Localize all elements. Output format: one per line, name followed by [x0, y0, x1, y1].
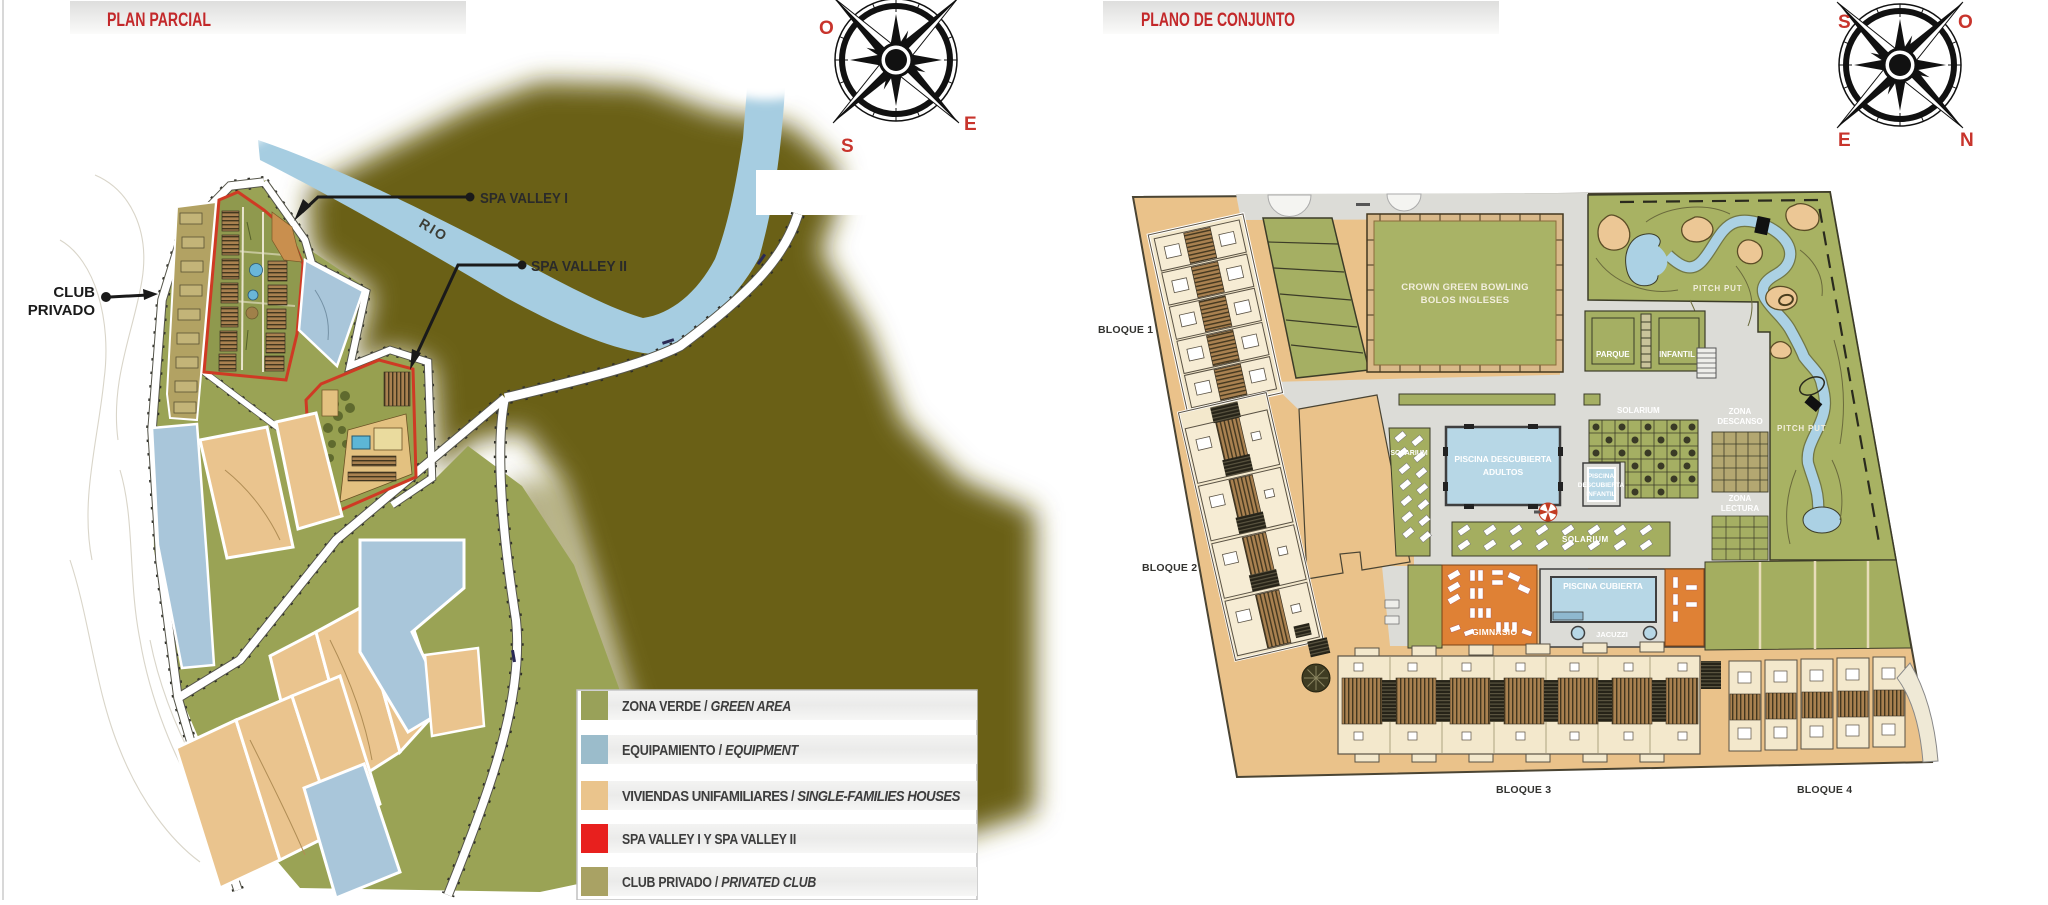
svg-text:PRIVADO: PRIVADO [28, 302, 96, 319]
svg-text:SPA VALLEY I: SPA VALLEY I [480, 190, 568, 207]
svg-text:PARQUE: PARQUE [1596, 350, 1630, 359]
svg-text:BLOQUE 2: BLOQUE 2 [1142, 562, 1197, 574]
svg-text:PITCH PUT: PITCH PUT [1693, 284, 1742, 293]
svg-text:O: O [1958, 12, 1973, 33]
svg-text:INFANTIL: INFANTIL [1659, 350, 1695, 359]
svg-text:ZONA VERDE / GREEN AREA: ZONA VERDE / GREEN AREA [622, 698, 791, 715]
svg-text:PISCINA DESCUBIERTA: PISCINA DESCUBIERTA [1454, 454, 1551, 464]
svg-text:PISCINA: PISCINA [1588, 473, 1615, 480]
svg-text:ZONA: ZONA [1729, 494, 1752, 503]
svg-text:BLOQUE 1: BLOQUE 1 [1098, 324, 1153, 336]
svg-text:S: S [1838, 12, 1851, 33]
svg-text:SOLARIUM: SOLARIUM [1562, 535, 1609, 544]
svg-text:S: S [841, 136, 854, 157]
svg-text:DESCANSO: DESCANSO [1717, 417, 1762, 426]
svg-text:JACUZZI: JACUZZI [1596, 630, 1628, 639]
svg-text:SOLARIUM: SOLARIUM [1617, 406, 1660, 415]
svg-text:BLOQUE 4: BLOQUE 4 [1797, 784, 1852, 796]
svg-text:SPA VALLEY II: SPA VALLEY II [531, 258, 627, 275]
svg-text:PLANO DE CONJUNTO: PLANO DE CONJUNTO [1141, 10, 1295, 31]
svg-text:CROWN GREEN BOWLING: CROWN GREEN BOWLING [1401, 282, 1529, 293]
svg-text:ADULTOS: ADULTOS [1483, 467, 1524, 477]
svg-text:E: E [964, 114, 977, 135]
svg-text:BOLOS INGLESES: BOLOS INGLESES [1421, 295, 1510, 306]
svg-text:ZONA: ZONA [1729, 407, 1752, 416]
svg-text:CLUB PRIVADO / PRIVATED CLUB: CLUB PRIVADO / PRIVATED CLUB [622, 874, 816, 891]
svg-text:GIMNASIO: GIMNASIO [1472, 627, 1517, 637]
svg-text:SPA VALLEY I Y SPA VALLEY II: SPA VALLEY I Y SPA VALLEY II [622, 831, 796, 848]
svg-text:VIVIENDAS UNIFAMILIARES / SING: VIVIENDAS UNIFAMILIARES / SINGLE-FAMILIE… [622, 788, 961, 805]
svg-text:PLAN PARCIAL: PLAN PARCIAL [107, 10, 211, 31]
svg-text:CLUB: CLUB [53, 284, 95, 301]
svg-text:N: N [1960, 130, 1974, 151]
svg-text:DESCUBIERTA: DESCUBIERTA [1578, 482, 1625, 489]
svg-text:LECTURA: LECTURA [1721, 504, 1759, 513]
svg-text:SOLARIUM: SOLARIUM [1390, 450, 1428, 457]
svg-text:PITCH PUT: PITCH PUT [1777, 424, 1826, 433]
svg-text:BLOQUE 3: BLOQUE 3 [1496, 784, 1551, 796]
svg-text:E: E [1838, 130, 1851, 151]
svg-text:EQUIPAMIENTO / EQUIPMENT: EQUIPAMIENTO / EQUIPMENT [622, 742, 800, 759]
svg-text:O: O [819, 18, 834, 39]
svg-text:INFANTIL: INFANTIL [1586, 491, 1615, 498]
svg-text:PISCINA CUBIERTA: PISCINA CUBIERTA [1563, 581, 1643, 591]
